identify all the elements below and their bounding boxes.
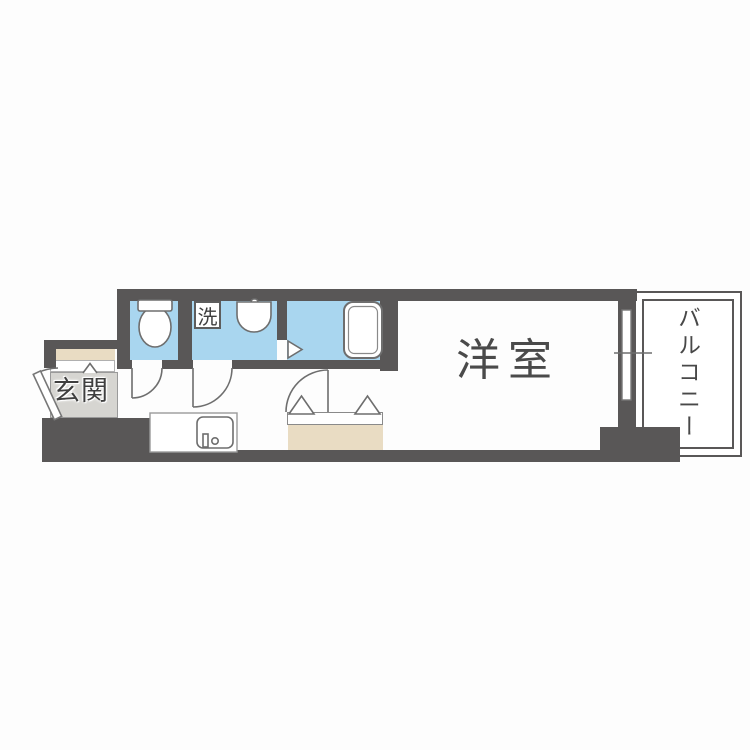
toilet-room xyxy=(130,301,178,360)
bathroom xyxy=(287,301,380,360)
toilet-door-swing xyxy=(132,368,162,398)
shoe-cabinet-front xyxy=(50,360,115,372)
wall-toilet-left xyxy=(117,289,130,362)
wall-pipe-space xyxy=(380,301,398,371)
wall-window-side xyxy=(618,289,634,428)
wall-bottom xyxy=(148,450,680,462)
wall-corridor-b xyxy=(162,360,193,369)
kitchen-counter xyxy=(150,413,237,452)
wall-entrance-top xyxy=(44,340,130,349)
washroom-door-swing xyxy=(193,368,232,407)
wall-corridor-c xyxy=(232,360,380,369)
floor-plan: 洋室 玄関 バルコニー 洗 xyxy=(0,0,750,750)
western-room-label: 洋室 xyxy=(398,336,618,387)
closet-interior xyxy=(288,425,383,451)
balcony-label: バルコニー xyxy=(673,306,699,456)
wall-toilet-washroom xyxy=(178,301,192,360)
corridor-door-swing xyxy=(286,370,328,412)
wall-top xyxy=(117,289,637,301)
washer-label: 洗 xyxy=(198,301,218,330)
shoe-cabinet-top xyxy=(50,348,115,360)
closet-door-track xyxy=(287,412,383,425)
wall-washroom-bath xyxy=(277,301,287,340)
wall-bottom-left xyxy=(42,418,150,462)
wall-corridor-a xyxy=(117,360,132,369)
washer-box: 洗 xyxy=(194,301,221,329)
wall-entrance-left xyxy=(44,340,56,368)
entrance-label: 玄関 xyxy=(53,376,109,407)
